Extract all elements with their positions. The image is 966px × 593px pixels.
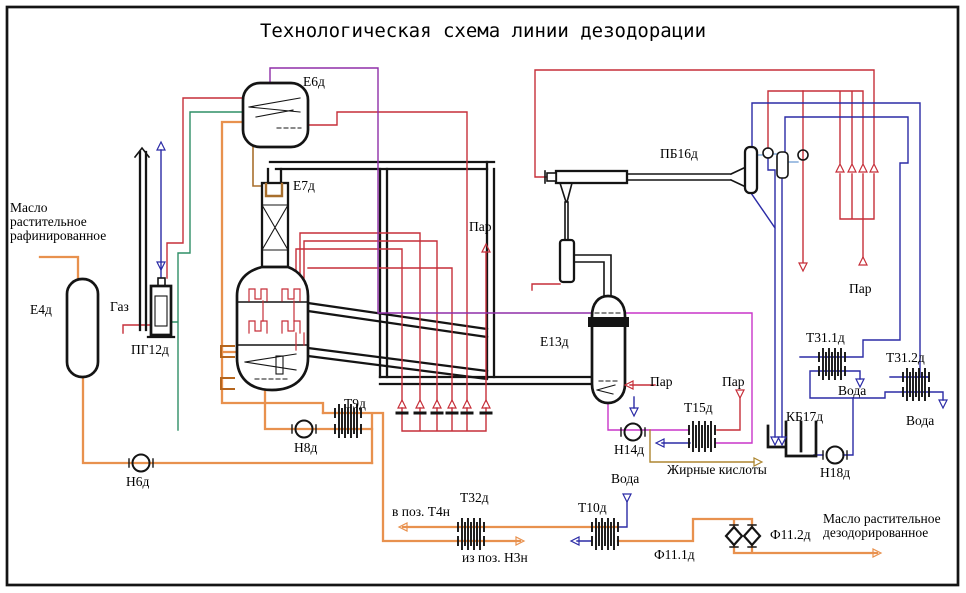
flow-arrow <box>771 437 779 445</box>
flow-arrow <box>463 400 471 408</box>
flow-arrow <box>859 257 867 265</box>
heat-exchanger-t31-2d <box>903 369 929 400</box>
label-t31-2d: Т31.2д <box>886 351 925 365</box>
vessel-e4d <box>67 279 98 377</box>
page-title: Технологическая схема линии дезодорации <box>0 20 966 42</box>
label-e13d: Е13д <box>540 335 569 349</box>
label-n18d: Н18д <box>820 466 850 480</box>
label-par-manifold: Пар <box>469 220 492 234</box>
label-v-poz-t4n: в поз. Т4н <box>392 505 450 519</box>
pump-impeller-icon <box>832 450 842 460</box>
heat-exchanger-t15d <box>689 422 715 451</box>
flow-arrow <box>836 164 844 172</box>
flow-arrow <box>939 400 947 408</box>
label-e4d: Е4д <box>30 303 52 317</box>
label-t9d: Т9д <box>344 397 366 411</box>
piping-purple <box>270 68 592 313</box>
label-gas: Газ <box>110 300 129 314</box>
heat-exchanger-t10d <box>592 519 618 549</box>
flow-arrow <box>157 142 165 150</box>
label-n6d: Н6д <box>126 475 149 489</box>
heat-exchanger-t32d <box>458 519 484 549</box>
vacuum-duct <box>268 162 592 384</box>
valve-icon <box>763 148 773 158</box>
filter-f11-2d-2 <box>744 527 760 545</box>
label-voda-t31-1d: Вода <box>838 384 866 398</box>
label-t31-1d: Т31.1д <box>806 331 845 345</box>
deaerator-e6d <box>243 83 308 147</box>
piping-green <box>170 112 243 430</box>
vessel-e13d <box>572 255 629 403</box>
column-e7d <box>262 183 288 267</box>
label-f11-2d: Ф11.2д <box>770 528 811 542</box>
label-oil-out: Масло растительное дезодорированное <box>823 512 941 540</box>
flow-arrow <box>799 263 807 271</box>
label-pg12d: ПГ12д <box>131 343 169 357</box>
vessel-small-separator <box>777 152 788 178</box>
flow-arrow <box>433 400 441 408</box>
flow-arrow <box>623 494 631 502</box>
label-fatty-acids: Жирные кислоты <box>667 463 767 477</box>
flow-arrow <box>482 400 490 408</box>
flow-arrow <box>398 400 406 408</box>
flow-arrow <box>848 164 856 172</box>
heat-exchanger-t31-1d <box>819 349 845 379</box>
piping-brown <box>253 147 266 186</box>
pump-n18d <box>827 447 844 464</box>
flow-arrow <box>870 164 878 172</box>
label-iz-poz-n3n: из поз. Н3н <box>462 551 528 565</box>
label-par-e13d: Пар <box>650 375 673 389</box>
deodorizer-column <box>221 267 308 390</box>
label-f11-1d: Ф11.1д <box>654 548 695 562</box>
flow-arrow <box>416 400 424 408</box>
label-n8d: Н8д <box>294 441 317 455</box>
label-voda-t31-2d: Вода <box>906 414 934 428</box>
label-t15d: Т15д <box>684 401 713 415</box>
label-par-t15d: Пар <box>722 375 745 389</box>
flow-arrow <box>859 164 867 172</box>
flow-arrow <box>736 390 744 398</box>
label-e7d: Е7д <box>293 179 315 193</box>
label-voda-t10d: Вода <box>611 472 639 486</box>
schematic-canvas: Технологическая схема линии дезодорации … <box>0 0 966 593</box>
label-n14d: Н14д <box>614 443 644 457</box>
filter-f11-2d-1 <box>726 527 742 545</box>
label-pb16d: ПБ16д <box>660 147 698 161</box>
label-e6d: Е6д <box>303 75 325 89</box>
flow-arrow <box>448 400 456 408</box>
label-oil-in: Масло растительное рафинированное <box>10 201 106 243</box>
pump-impeller-icon <box>630 427 640 437</box>
label-t32d: Т32д <box>460 491 489 505</box>
label-t10d: Т10д <box>578 501 607 515</box>
flow-arrow <box>630 408 638 416</box>
label-par-right: Пар <box>849 282 872 296</box>
label-kb17d: КБ17д <box>786 410 823 424</box>
pump-n14d <box>625 424 642 441</box>
